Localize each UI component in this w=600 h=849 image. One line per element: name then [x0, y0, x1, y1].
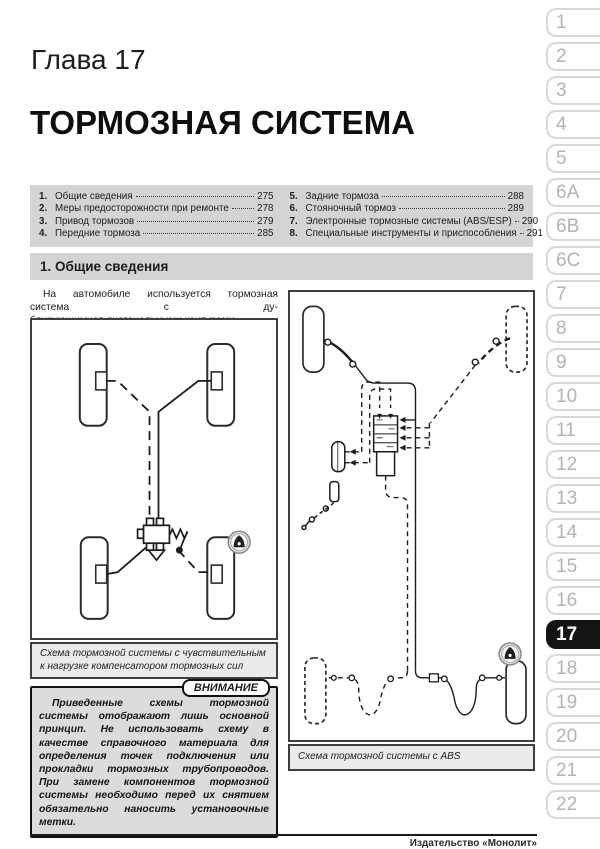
toc-item-page: 278 [257, 203, 273, 215]
intro-line-1: На автомобиле используется тормозная сис… [30, 288, 278, 314]
toc-item-label: Меры предосторожности при ремонте [55, 203, 229, 215]
figure-brake-circuit: Схема тормозной системы с чувствительным… [30, 318, 278, 679]
toc-item-label: Специальные инструменты и приспособления [306, 228, 517, 240]
toc-item: 8. Специальные инструменты и приспособле… [290, 228, 525, 240]
fig2-caption: Схема тормозной системы с ABS [288, 744, 535, 771]
toc-item-page: 291 [527, 228, 543, 240]
footer-publisher: Издательство «Монолит» [410, 838, 537, 849]
warning-label: ВНИМАНИЕ [182, 679, 270, 697]
toc-item-label: Электронные тормозные системы (ABS/ESP) [306, 216, 512, 228]
toc-item: 5. Задние тормоза 288 [290, 191, 525, 203]
sidebar-tabs: 123456A6B6C78910111213141516171819202122 [546, 8, 600, 824]
toc-leader-dots [137, 221, 254, 222]
toc-item: 2. Меры предосторожности при ремонте 278 [39, 203, 274, 215]
master-cylinder-shape [138, 518, 188, 560]
brake-line-front-right-solid [158, 381, 211, 522]
sidebar-tab: 19 [546, 688, 600, 717]
warning-box: ВНИМАНИЕ Приведенные схемы тормозной сис… [30, 686, 278, 838]
toc-leader-dots [399, 208, 505, 209]
toc-item-page: 290 [522, 216, 538, 228]
front-left-circuit [324, 339, 416, 671]
figure-abs-system: Схема тормозной системы с ABS [288, 290, 535, 771]
sidebar-tab: 11 [546, 416, 600, 445]
toc-leader-dots [515, 221, 519, 222]
sidebar-tab: 21 [546, 756, 600, 785]
sidebar-tab: 9 [546, 348, 600, 377]
sidebar-tab: 3 [546, 76, 600, 105]
toc-item-page: 289 [508, 203, 524, 215]
sidebar-tab: 10 [546, 382, 600, 411]
sidebar-tab: 6A [546, 178, 600, 207]
toc-column-right: 5. Задние тормоза 288 6. Стояночный торм… [290, 191, 525, 241]
toc-column-left: 1. Общие сведения 275 2. Меры предосторо… [39, 191, 274, 241]
sidebar-tab: 14 [546, 518, 600, 547]
page-title: ТОРМОЗНАЯ СИСТЕМА [30, 104, 415, 142]
toc-item-number: 3. [39, 216, 55, 228]
toc-item-number: 5. [290, 191, 306, 203]
toc-item: 3. Привод тормозов 279 [39, 216, 274, 228]
abs-diagram-svg [290, 292, 533, 740]
brake-circuit-diagram-svg [32, 320, 276, 638]
sidebar-tab: 8 [546, 314, 600, 343]
toc-leader-dots [143, 233, 254, 234]
toc-item-page: 288 [508, 191, 524, 203]
sidebar-tab: 13 [546, 484, 600, 513]
toc-item-label: Передние тормоза [55, 228, 140, 240]
sidebar-tab: 16 [546, 586, 600, 615]
monolit-logo-icon [499, 643, 521, 665]
sidebar-tab: 15 [546, 552, 600, 581]
sidebar-tab: 1 [546, 8, 600, 37]
manual-page: Глава 17 ТОРМОЗНАЯ СИСТЕМА 1. Общие свед… [0, 0, 600, 849]
toc-item-label: Привод тормозов [55, 216, 134, 228]
toc-item: 4. Передние тормоза 285 [39, 228, 274, 240]
toc-item-number: 7. [290, 216, 306, 228]
toc-item-number: 4. [39, 228, 55, 240]
toc-item-page: 279 [257, 216, 273, 228]
toc-item-label: Общие сведения [55, 191, 133, 203]
toc-item: 6. Стояночный тормоз 289 [290, 203, 525, 215]
sidebar-tab: 18 [546, 654, 600, 683]
fig2-diagram [288, 290, 535, 742]
toc-leader-dots [232, 208, 254, 209]
monolit-logo-icon [228, 531, 250, 553]
toc-item: 7. Электронные тормозные системы (ABS/ES… [290, 216, 525, 228]
sidebar-tab: 17 [546, 620, 600, 649]
warning-text: Приведенные схемы тормозной системы отоб… [32, 688, 276, 836]
brake-line-front-left-dashed [107, 381, 150, 522]
sidebar-tab: 2 [546, 42, 600, 71]
brake-line-rear-left-solid [107, 546, 148, 574]
sidebar-tab: 12 [546, 450, 600, 479]
toc-leader-dots [136, 196, 255, 197]
sidebar-tab: 6B [546, 212, 600, 241]
toc-item-label: Стояночный тормоз [306, 203, 396, 215]
toc-item-number: 1. [39, 191, 55, 203]
footer-rule [30, 834, 537, 836]
fig1-diagram [30, 318, 278, 640]
front-right-circuit [406, 338, 511, 448]
toc-leader-dots [382, 196, 505, 197]
toc-item-page: 285 [257, 228, 273, 240]
sidebar-tab: 6C [546, 246, 600, 275]
sidebar-tab: 5 [546, 144, 600, 173]
sidebar-tab: 7 [546, 280, 600, 309]
abs-unit-shape [374, 416, 398, 476]
toc-item-number: 8. [290, 228, 306, 240]
toc-item-number: 2. [39, 203, 55, 215]
toc-item-page: 275 [257, 191, 273, 203]
sidebar-tab: 22 [546, 790, 600, 819]
toc-item-number: 6. [290, 203, 306, 215]
table-of-contents: 1. Общие сведения 275 2. Меры предосторо… [30, 185, 533, 247]
toc-leader-dots [520, 233, 524, 234]
sidebar-tab: 20 [546, 722, 600, 751]
toc-item: 1. Общие сведения 275 [39, 191, 274, 203]
sidebar-tab: 4 [546, 110, 600, 139]
section-heading-bar: 1. Общие сведения [30, 253, 533, 280]
toc-item-label: Задние тормоза [306, 191, 379, 203]
chapter-heading: Глава 17 [31, 44, 146, 76]
fig1-caption: Схема тормозной системы с чувствительным… [30, 642, 278, 679]
booster-pedal-shape [302, 442, 345, 530]
